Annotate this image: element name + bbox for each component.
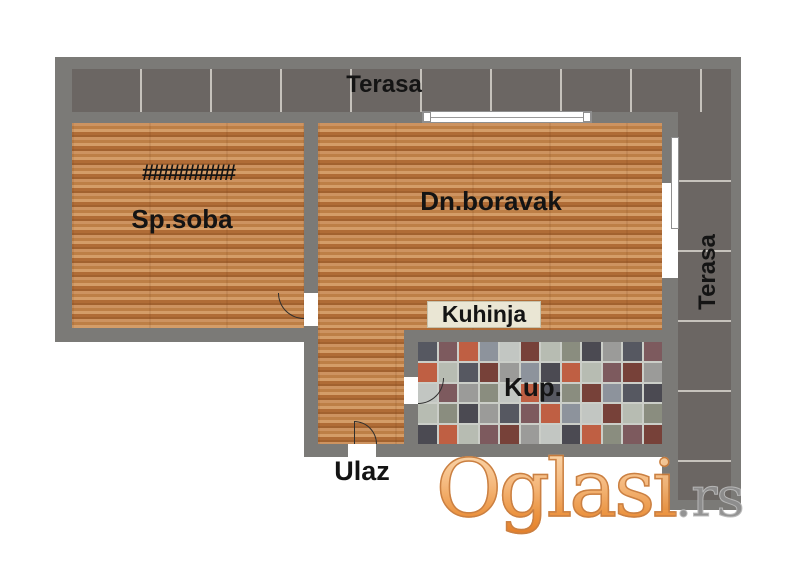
window-right-cap xyxy=(583,112,591,122)
floor-plan: Terasa ######### Sp.soba Dn.boravak Kuhi… xyxy=(0,0,800,577)
window-midline xyxy=(431,117,583,118)
bathroom-tile xyxy=(541,342,560,361)
bathroom-tile xyxy=(418,404,437,423)
window-left-cap xyxy=(423,112,431,122)
bathroom-tile xyxy=(644,404,663,423)
window xyxy=(422,111,592,123)
bathroom-tile xyxy=(418,342,437,361)
entrance-label: Ulaz xyxy=(326,457,398,485)
bathroom-tile xyxy=(582,404,601,423)
bathroom-tile xyxy=(541,404,560,423)
bathroom-tile xyxy=(439,404,458,423)
bathroom-tile xyxy=(500,342,519,361)
kitchen-label-box: Kuhinja xyxy=(427,301,541,328)
bathroom-tile xyxy=(603,384,622,403)
terrace-top-label: Terasa xyxy=(334,72,434,97)
wall-bedroom-bottom xyxy=(55,328,318,342)
kitchen-label: Kuhinja xyxy=(442,301,526,328)
bedroom-door-opening xyxy=(304,293,318,326)
bathroom-tile xyxy=(623,363,642,382)
bathroom-tile xyxy=(562,342,581,361)
living-room-label: Dn.boravak xyxy=(415,188,567,215)
bathroom-tile xyxy=(459,404,478,423)
wall-bathroom-top xyxy=(404,330,678,342)
bathroom-tile xyxy=(644,384,663,403)
bathroom-tile xyxy=(418,425,437,444)
bathroom-tile xyxy=(644,342,663,361)
wall-outer-top xyxy=(55,57,741,69)
living-room-floor xyxy=(318,123,662,330)
bathroom-tile xyxy=(644,363,663,382)
bathroom-tile xyxy=(521,342,540,361)
bathroom-tile xyxy=(603,342,622,361)
bathroom-tile xyxy=(623,342,642,361)
oglasi-watermark: Oglasi.rs xyxy=(436,442,744,535)
bedroom-label: Sp.soba xyxy=(120,206,244,233)
bathroom-door-opening xyxy=(404,377,418,404)
bathroom-tile xyxy=(603,404,622,423)
bathroom-tile xyxy=(582,342,601,361)
watermark-tld-text: .rs xyxy=(675,465,744,529)
terrace-right-label: Terasa xyxy=(695,232,719,312)
bathroom-tile xyxy=(562,404,581,423)
bathroom-tile xyxy=(459,384,478,403)
bathroom-tile xyxy=(480,342,499,361)
wall-outer-left xyxy=(55,57,72,342)
bathroom-tile xyxy=(459,363,478,382)
bathroom-tile xyxy=(459,342,478,361)
bathroom-tile xyxy=(623,384,642,403)
bedroom-radiator-symbol: ######### xyxy=(132,161,244,184)
bathroom-tile xyxy=(582,384,601,403)
wall-bedroom-living xyxy=(304,112,318,444)
bathroom-tile xyxy=(500,404,519,423)
balcony-door-leaf xyxy=(671,137,679,229)
bathroom-tile xyxy=(603,363,622,382)
bathroom-tile xyxy=(439,342,458,361)
bathroom-tile xyxy=(582,363,601,382)
bathroom-tile xyxy=(480,404,499,423)
bathroom-tile xyxy=(521,404,540,423)
bathroom-tile xyxy=(623,404,642,423)
watermark-brand-text: Oglasi xyxy=(436,442,675,535)
bathroom-label: Kup. xyxy=(495,374,571,401)
